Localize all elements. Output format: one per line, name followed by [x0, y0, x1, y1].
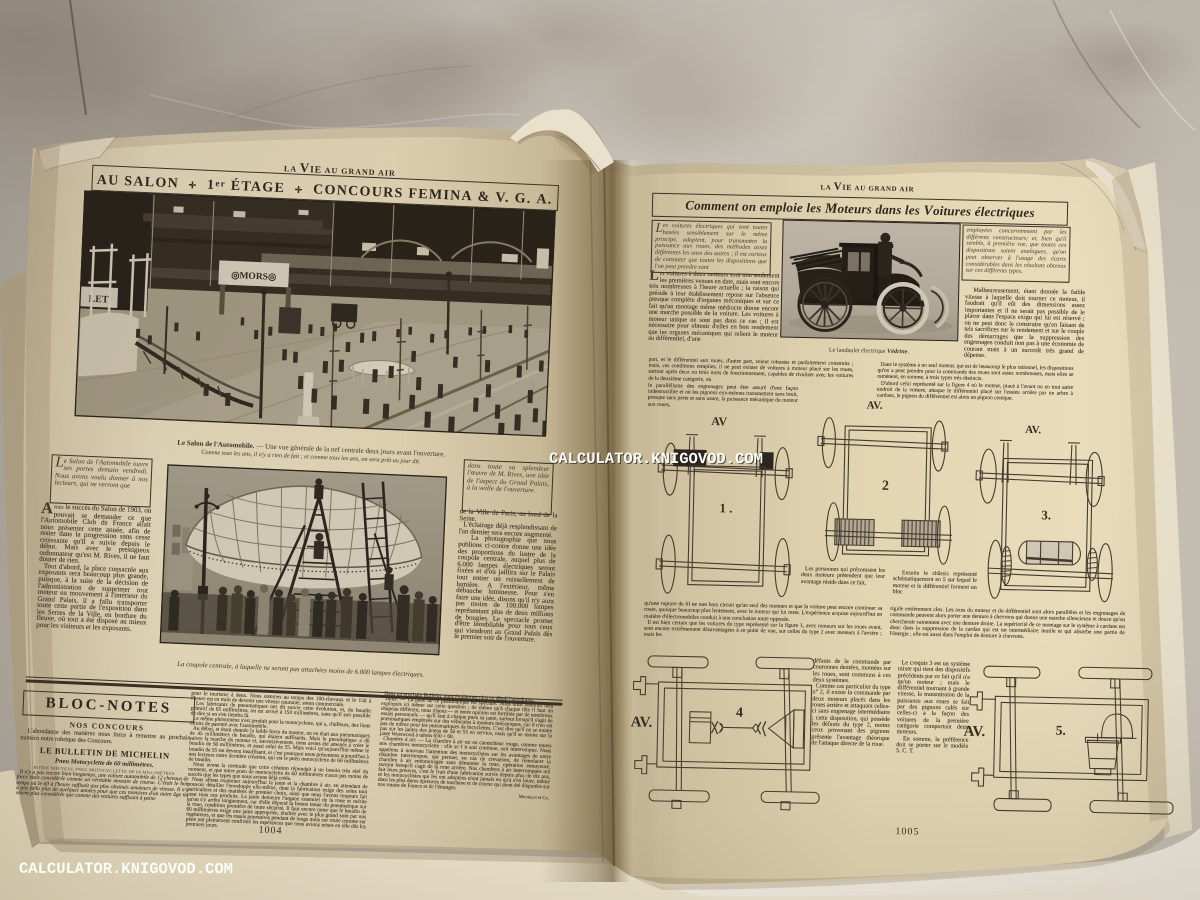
svg-text:1 .: 1 .	[719, 500, 732, 515]
svg-text:2: 2	[882, 479, 889, 494]
svg-text:AV.: AV.	[631, 714, 653, 730]
svg-text:◎MORS◎: ◎MORS◎	[231, 271, 277, 283]
svg-text:3.: 3.	[1041, 507, 1051, 522]
svg-text:4: 4	[736, 706, 743, 721]
svg-text:5.: 5.	[1056, 723, 1066, 738]
